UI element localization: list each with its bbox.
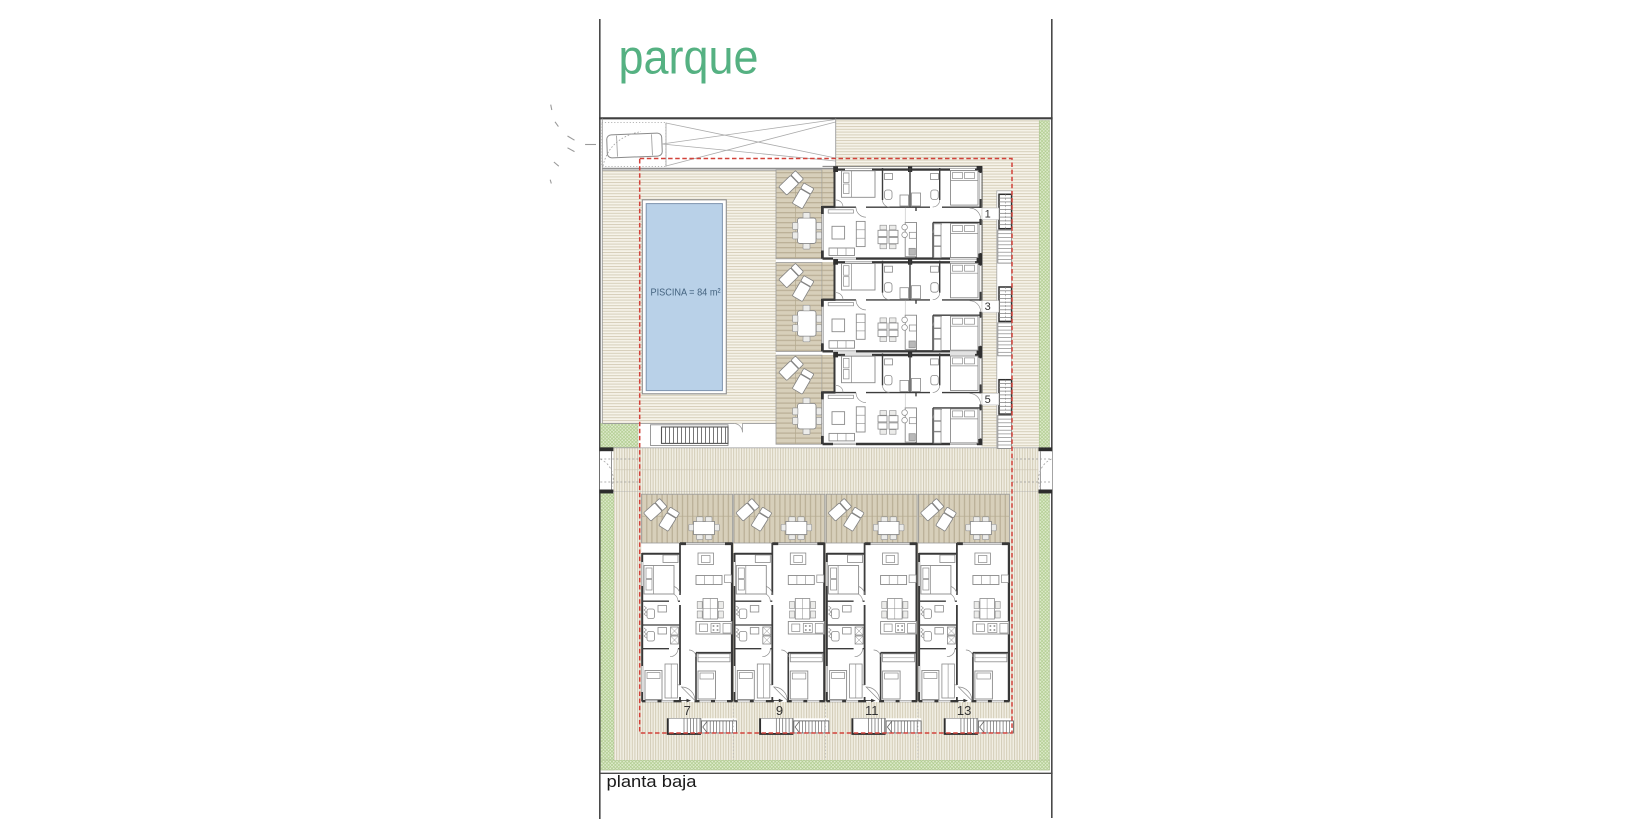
svg-text:13: 13 [957, 703, 971, 718]
svg-text:5: 5 [985, 394, 991, 406]
svg-text:7: 7 [684, 703, 691, 718]
svg-text:9: 9 [776, 703, 783, 718]
svg-text:PISCINA = 84 m²: PISCINA = 84 m² [651, 288, 722, 299]
svg-text:11: 11 [865, 703, 879, 718]
svg-text:parque: parque [619, 32, 759, 85]
svg-text:1: 1 [985, 209, 991, 221]
svg-text:planta baja: planta baja [607, 772, 698, 791]
svg-text:3: 3 [985, 301, 991, 313]
